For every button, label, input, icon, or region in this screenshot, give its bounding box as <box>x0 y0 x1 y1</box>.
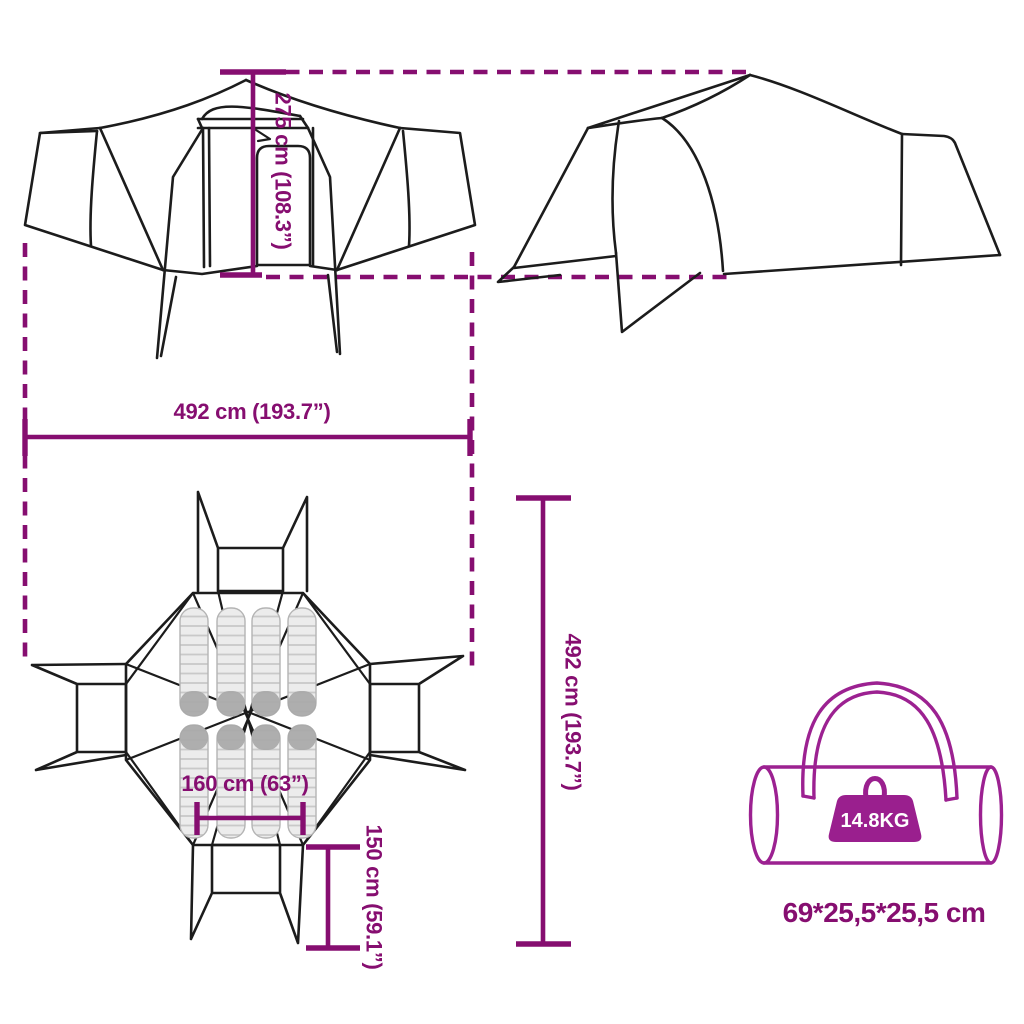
sleeping-pad-footbox <box>288 725 316 750</box>
sleeping-pad-footbox <box>252 725 280 750</box>
sleeping-pad-footbox <box>180 725 208 750</box>
side-door-arch <box>662 118 723 271</box>
side-door-top-ridge <box>662 75 750 118</box>
height-label: 275 cm (108.3”) <box>270 93 295 250</box>
vestibule-depth-label: 150 cm (59.1”) <box>361 825 386 970</box>
front-right-wing-seam <box>403 131 410 246</box>
side-front-flap <box>498 267 560 282</box>
side-rear-seam <box>901 134 902 265</box>
depth-label: 492 cm (193.7”) <box>560 634 585 791</box>
vestibule-left <box>32 664 126 770</box>
side-ground-flap <box>616 253 700 332</box>
sleeping-pad-footbox <box>217 691 245 716</box>
side-ridge <box>750 75 902 134</box>
side-front-ridge <box>588 75 750 128</box>
sleeping-pad-footbox <box>217 725 245 750</box>
side-ground-line <box>724 255 1000 274</box>
dimension-width: 492 cm (193.7”) <box>25 399 470 456</box>
side-porch-top <box>588 118 662 128</box>
bag-size-label: 69*25,5*25,5 cm <box>783 897 986 928</box>
inner-width-label: 160 cm (63”) <box>181 771 308 796</box>
front-center-left-edge <box>100 128 163 270</box>
bag-right-end <box>981 767 1002 863</box>
tent-dimension-diagram: 275 cm (108.3”) 492 cm (193.7”) 492 cm (… <box>0 0 1024 1024</box>
vestibule-bottom <box>191 845 303 943</box>
sleeping-pad-footbox <box>288 691 316 716</box>
sleeping-pad-footbox <box>252 691 280 716</box>
side-rear-edge <box>902 134 1000 255</box>
front-ridge-left <box>100 80 246 128</box>
side-porch-bottom <box>514 256 616 268</box>
front-left-door-flap <box>157 128 203 358</box>
diagram-canvas: 275 cm (108.3”) 492 cm (193.7”) 492 cm (… <box>0 0 1024 1024</box>
front-center-right-edge <box>337 128 400 270</box>
bag-weight-label: 14.8KG <box>841 810 910 832</box>
tent-floor-plan <box>32 492 465 943</box>
side-front-leg <box>514 128 588 267</box>
tent-front-view <box>25 80 475 358</box>
carry-bag: 14.8KG 69*25,5*25,5 cm <box>751 683 1002 928</box>
front-ridge-right <box>246 80 400 128</box>
side-porch-seam <box>613 121 619 253</box>
dimension-depth: 492 cm (193.7”) <box>516 498 585 944</box>
front-left-wing-seam <box>90 131 97 246</box>
tent-side-view <box>498 75 1000 332</box>
vestibule-right <box>370 656 465 770</box>
sleeping-pad-footbox <box>180 691 208 716</box>
projection-lines <box>25 72 752 668</box>
front-door-frame-left <box>203 128 210 267</box>
bag-left-end <box>751 767 778 863</box>
vestibule-top <box>198 492 307 591</box>
front-door-tieback <box>256 130 270 141</box>
width-label: 492 cm (193.7”) <box>174 399 331 424</box>
sleeping-pads-top <box>180 608 316 716</box>
dimension-vestibule-depth: 150 cm (59.1”) <box>306 825 386 970</box>
floor-plan-frame <box>32 492 465 943</box>
